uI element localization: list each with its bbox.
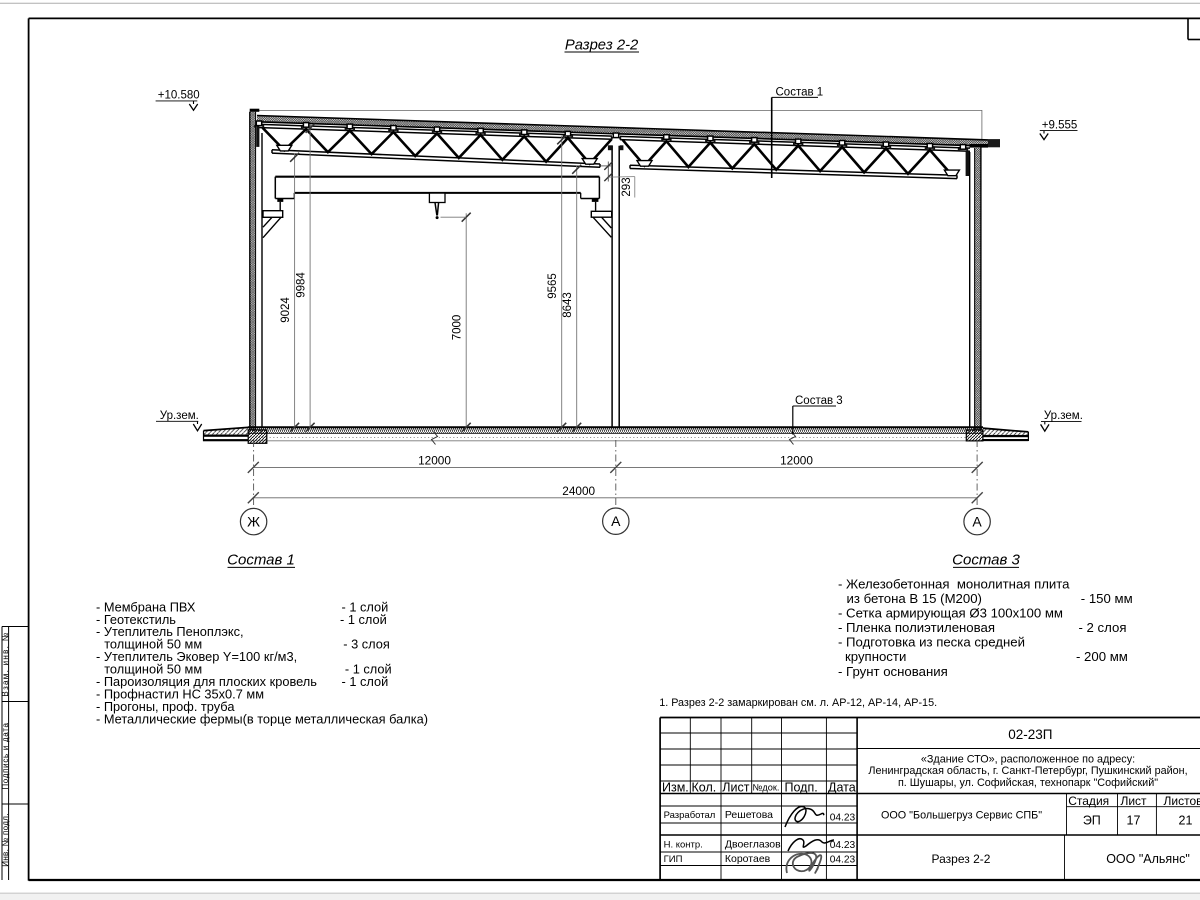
svg-text:из бетона В 15 (М200): из бетона В 15 (М200): [847, 591, 982, 606]
svg-text:Ленинградская область, г. Санк: Ленинградская область, г. Санкт-Петербур…: [868, 765, 1187, 777]
svg-text:293: 293: [621, 177, 633, 196]
svg-text:«Здание СТО», расположенное по: «Здание СТО», расположенное по адресу:: [921, 753, 1135, 765]
svg-text:- Пленка полиэтиленовая: - Пленка полиэтиленовая: [838, 620, 995, 635]
svg-text:Лист: Лист: [1120, 794, 1147, 808]
svg-text:- 1 слой: - 1 слой: [340, 612, 387, 627]
svg-text:21: 21: [1179, 814, 1193, 828]
svg-text:- Грунт основания: - Грунт основания: [838, 664, 948, 679]
svg-text:№док.: №док.: [753, 782, 780, 792]
svg-text:- 200 мм: - 200 мм: [1076, 649, 1128, 664]
svg-text:Состав 3: Состав 3: [952, 551, 1020, 568]
svg-text:Стадия: Стадия: [1068, 794, 1109, 808]
svg-text:- Подготовка из песка средней: - Подготовка из песка средней: [838, 635, 1025, 650]
svg-text:12000: 12000: [418, 453, 451, 467]
svg-text:12000: 12000: [780, 453, 813, 467]
svg-text:9024: 9024: [280, 297, 292, 323]
svg-text:- Сетка армирующая Ø3 100х100: - Сетка армирующая Ø3 100х100 мм: [838, 606, 1063, 621]
svg-text:Лист: Лист: [722, 780, 749, 794]
svg-text:- Металлические фермы(в торце: - Металлические фермы(в торце металличес…: [96, 711, 428, 726]
svg-text:04.23: 04.23: [830, 840, 856, 851]
svg-text:п. Шушары, ул. Софийская, техн: п. Шушары, ул. Софийская, технопарк "Соф…: [898, 777, 1158, 789]
svg-text:Состав 3: Состав 3: [795, 395, 843, 407]
svg-text:Разработал: Разработал: [664, 810, 716, 821]
svg-text:7000: 7000: [452, 315, 464, 341]
svg-text:Дата: Дата: [828, 780, 856, 794]
svg-text:Решетова: Решетова: [725, 809, 773, 821]
svg-text:04.23: 04.23: [830, 855, 856, 866]
svg-text:Кол.: Кол.: [692, 780, 717, 794]
svg-text:А: А: [972, 514, 982, 530]
svg-text:Изм.: Изм.: [662, 780, 689, 794]
svg-text:А: А: [611, 513, 621, 529]
svg-text:8643: 8643: [562, 292, 574, 318]
svg-text:ЭП: ЭП: [1083, 814, 1101, 828]
svg-text:Ур.зем.: Ур.зем.: [1044, 410, 1083, 422]
svg-text:- 2 слоя: - 2 слоя: [1079, 620, 1127, 635]
svg-text:Коротаев: Коротаев: [725, 853, 771, 865]
svg-text:ООО "Большегруз Сервис СПБ": ООО "Большегруз Сервис СПБ": [881, 810, 1042, 822]
svg-text:Разрез 2-2: Разрез 2-2: [565, 38, 639, 54]
svg-text:Инв. № подл.: Инв. № подл.: [1, 813, 10, 866]
svg-text:Разрез 2-2: Разрез 2-2: [932, 852, 991, 866]
svg-text:04.23: 04.23: [830, 812, 856, 823]
svg-text:- 1 слой: - 1 слой: [342, 674, 389, 689]
svg-text:9984: 9984: [295, 272, 307, 298]
svg-text:крупности: крупности: [845, 649, 906, 664]
svg-text:1. Разрез 2-2 замаркирован см.: 1. Разрез 2-2 замаркирован см. л. АР-12,…: [659, 697, 937, 709]
svg-text:+9.555: +9.555: [1042, 119, 1078, 131]
svg-text:- 3 слоя: - 3 слоя: [343, 637, 390, 652]
svg-text:Состав 1: Состав 1: [227, 551, 295, 568]
svg-text:Ур.зем.: Ур.зем.: [160, 410, 199, 422]
svg-text:Ж: Ж: [247, 514, 260, 530]
svg-text:Двоеглазов: Двоеглазов: [725, 839, 781, 851]
svg-text:+10.580: +10.580: [158, 89, 200, 101]
svg-text:Н. контр.: Н. контр.: [664, 840, 703, 851]
svg-text:Подпись и дата: Подпись и дата: [1, 722, 10, 789]
svg-text:Подп.: Подп.: [785, 780, 818, 794]
svg-text:ГИП: ГИП: [664, 854, 683, 865]
svg-text:17: 17: [1127, 814, 1141, 828]
svg-text:- 150 мм: - 150 мм: [1081, 591, 1133, 606]
svg-text:9565: 9565: [547, 273, 559, 299]
svg-text:Состав 1: Состав 1: [776, 87, 824, 99]
svg-text:Взам. инв. №: Взам. инв. №: [1, 631, 10, 696]
svg-text:24000: 24000: [562, 484, 595, 498]
svg-text:02-23П: 02-23П: [1008, 727, 1052, 742]
svg-text:- Железобетонная монолитная п: - Железобетонная монолитная плита: [838, 577, 1070, 592]
svg-text:Листов: Листов: [1164, 794, 1200, 808]
svg-text:ООО "Альянс": ООО "Альянс": [1106, 852, 1190, 866]
